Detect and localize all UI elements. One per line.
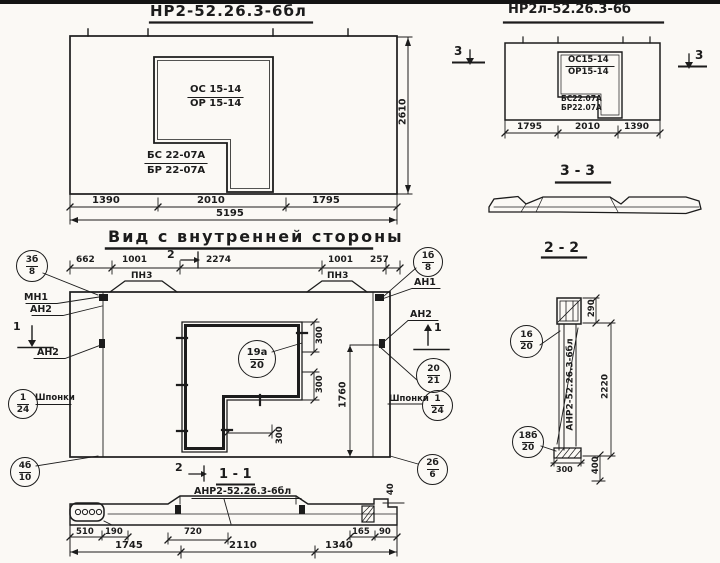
dim-m-1795: 1795 [517, 123, 542, 132]
dim-1001-right: 1001 [328, 256, 353, 265]
dim-510: 510 [76, 528, 94, 537]
mirror-view-title: НР2л-52.26.3-6б [508, 3, 631, 16]
section-mark-3-right: 3 [695, 49, 703, 61]
mirror-opening-label-3: БС22.07А [561, 95, 602, 103]
dim-300-c: 300 [276, 422, 285, 448]
dim-290: 290 [588, 295, 597, 321]
section-11-stamp: АНР2-52.26.3-6бл [194, 487, 291, 497]
section-33-title: 3 - 3 [560, 164, 595, 178]
callout-den: 24 [17, 404, 30, 415]
outer-opening-label-4: БР 22-07А [147, 166, 205, 176]
callout-keys-left: 1 24 [8, 389, 38, 419]
dim-1795: 1795 [312, 196, 340, 206]
section-mark-2-top: 2 [167, 249, 175, 260]
dim-300-a: 300 [316, 322, 325, 348]
callout-den: 8 [422, 262, 434, 273]
section-22-title: 2 - 2 [544, 241, 579, 255]
callout-num: 1б [422, 252, 435, 261]
dim-1745: 1745 [115, 541, 143, 551]
dim-90: 90 [379, 528, 391, 537]
mirror-opening-label-2: ОР15-14 [568, 68, 609, 77]
dim-1001-left: 1001 [122, 256, 147, 265]
callout-3b-8: 3б 8 [16, 250, 48, 282]
callout-num: 20 [427, 365, 440, 374]
label-an2-left: АН2 [37, 348, 59, 358]
dim-40: 40 [387, 479, 396, 499]
callout-den: 10 [19, 472, 32, 483]
callout-keys-right: 1 24 [422, 390, 453, 421]
dim-165: 165 [352, 528, 370, 537]
dim-300-bottom: 300 [556, 466, 573, 474]
callout-num: 18б [519, 432, 538, 441]
mirror-opening-label-4: БР22.07А [561, 104, 602, 112]
callout-den: 20 [520, 341, 533, 352]
section-mark-2-bottom: 2 [175, 462, 183, 473]
callout-num: 3б [26, 256, 39, 265]
dim-2610: 2610 [398, 96, 408, 128]
label-an2-tl: АН2 [30, 305, 52, 315]
section-mark-3-left: 3 [454, 45, 462, 57]
callout-2b-6: 2б 6 [417, 454, 448, 485]
dim-400: 400 [592, 452, 601, 478]
callout-20-21: 20 21 [416, 358, 451, 393]
blueprint-sheet: НР2-52.26.3-6бл НР2л-52.26.3-6б 3 - 3 2 … [0, 0, 720, 563]
callout-19a-20: 19а 20 [238, 340, 276, 378]
dim-m-1390: 1390 [624, 123, 649, 132]
dim-m-2010: 2010 [575, 123, 600, 132]
callout-num: 1 [434, 395, 440, 404]
callout-4b-10: 4б 10 [10, 457, 40, 487]
callout-den: 24 [431, 405, 444, 416]
section-11-title: 1 - 1 [219, 468, 252, 481]
dim-2110: 2110 [229, 541, 257, 551]
dim-1340: 1340 [325, 541, 353, 551]
dim-2220: 2220 [602, 367, 611, 407]
callout-num: 16 [520, 331, 533, 340]
outer-view-title: НР2-52.26.3-6бл [150, 4, 307, 19]
callout-num: 19а [247, 348, 268, 358]
label-an1: АН1 [414, 278, 436, 288]
inner-view-title: Вид с внутренней стороны [108, 229, 404, 245]
callout-18b-20: 18б 20 [512, 426, 544, 458]
section-mark-1-left: 1 [13, 321, 21, 332]
callout-16-20: 16 20 [510, 325, 543, 358]
callout-num: 2б [426, 459, 439, 468]
dim-1760: 1760 [338, 378, 348, 412]
dim-257: 257 [370, 256, 389, 265]
mirror-opening-label-1: ОС15-14 [568, 56, 609, 65]
dim-662: 662 [76, 256, 95, 265]
dim-1390: 1390 [92, 196, 120, 206]
label-an2-right: АН2 [410, 310, 432, 320]
dim-2010: 2010 [197, 196, 225, 206]
loop-label-left: ПН3 [131, 272, 152, 281]
section-22-stamp: АНР2-52.26.3-6бл [567, 330, 576, 440]
dim-190: 190 [105, 528, 123, 537]
callout-num: 4б [19, 462, 32, 471]
label-mn1: МН1 [24, 293, 48, 303]
dim-5195: 5195 [216, 209, 244, 219]
loop-label-right: ПН3 [327, 272, 348, 281]
callout-den: 8 [26, 266, 38, 277]
callout-den: 20 [250, 359, 264, 371]
dim-300-b: 300 [316, 371, 325, 397]
callout-num: 1 [20, 394, 26, 403]
callout-den: 6 [427, 469, 439, 480]
drawing-linework [0, 0, 720, 563]
callout-den: 21 [427, 375, 440, 386]
dim-720: 720 [184, 528, 202, 537]
outer-opening-label-2: ОР 15-14 [190, 99, 241, 109]
dim-2274: 2274 [206, 256, 231, 265]
callout-den: 20 [522, 442, 535, 453]
outer-opening-label-1: ОС 15-14 [190, 85, 241, 95]
callout-1b-8: 1б 8 [413, 247, 443, 277]
outer-opening-label-3: БС 22-07А [147, 151, 205, 161]
section-mark-1-right: 1 [434, 322, 442, 333]
label-keys-left: Шпонки [35, 394, 75, 403]
